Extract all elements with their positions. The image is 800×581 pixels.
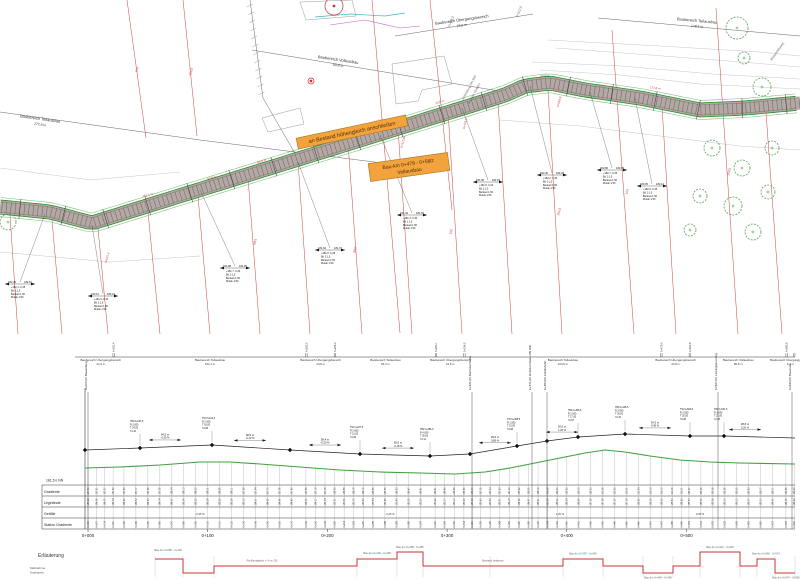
svg-text:-0,35 %: -0,35 %: [161, 436, 171, 440]
svg-text:188,22: 188,22: [519, 487, 521, 495]
svg-text:-0,35 %: -0,35 %: [195, 512, 205, 516]
svg-text:188,31: 188,31: [208, 487, 210, 495]
svg-text:f 0,10: f 0,10: [130, 430, 137, 433]
svg-text:187,38: 187,38: [603, 498, 605, 506]
profile-datum-label: 181,5 ü NN: [46, 479, 64, 483]
svg-text:184,30: 184,30: [306, 498, 308, 506]
svg-text:0+150: 0+150: [267, 520, 269, 527]
svg-text:0+190: 0+190: [315, 520, 317, 527]
svg-text:164,5 m: 164,5 m: [558, 362, 569, 366]
svg-text:182,95: 182,95: [616, 166, 624, 170]
svg-text:0,45 %: 0,45 %: [651, 424, 660, 428]
svg-text:186,09: 186,09: [661, 498, 663, 506]
svg-text:185,53: 185,53: [689, 498, 691, 506]
svg-text:186,49: 186,49: [445, 487, 447, 495]
svg-text:f 0,09: f 0,09: [350, 436, 357, 439]
svg-text:181,88: 181,88: [223, 264, 231, 268]
svg-text:184,92: 184,92: [794, 498, 796, 506]
svg-text:0+352: 0+352: [509, 520, 511, 527]
svg-text:190,31: 190,31: [627, 487, 629, 495]
svg-text:Mulde 1:50: Mulde 1:50: [403, 227, 416, 230]
svg-text:185,12: 185,12: [737, 498, 739, 506]
svg-text:0+344: 0+344: [500, 520, 502, 527]
svg-text:0+070: 0+070: [172, 520, 174, 527]
svg-text:0+440: 0+440: [615, 520, 617, 527]
svg-text:Mulde 1:50: Mulde 1:50: [11, 296, 24, 299]
svg-text:184,30: 184,30: [105, 498, 107, 506]
svg-text:186,78: 186,78: [354, 487, 356, 495]
svg-text:183,46: 183,46: [385, 498, 387, 506]
svg-text:182,04: 182,04: [107, 292, 115, 296]
callout-baukm: Bau-km 0+479 - 0+580: Vollausbau: [368, 153, 450, 182]
svg-text:189,93: 189,93: [591, 487, 593, 495]
svg-text:183,43: 183,43: [481, 498, 483, 506]
svg-text:Bau-km 0+512 - 0+545: Bau-km 0+512 - 0+545: [706, 545, 734, 549]
svg-text:184,90: 184,90: [172, 498, 174, 506]
svg-text:185,12: 185,12: [244, 498, 246, 506]
svg-text:0+583,6: 0+583,6: [556, 96, 563, 108]
profile-table-headers: 181,5 ü NN Gradiente Urgelände Gefälle S…: [44, 479, 72, 528]
svg-text:Bau-km 0+560 - 0+574: Bau-km 0+560 - 0+574: [752, 552, 780, 556]
svg-text:0,85 %: 0,85 %: [491, 438, 500, 442]
svg-text:0+488: 0+488: [672, 520, 674, 527]
svg-text:186,35: 186,35: [650, 498, 652, 506]
svg-text:0+420: 0+420: [591, 520, 593, 527]
svg-text:185,90: 185,90: [557, 498, 559, 506]
svg-text:0+170: 0+170: [291, 520, 293, 527]
svg-text:f 0,11: f 0,11: [420, 438, 426, 441]
svg-text:102/1: 102/1: [726, 167, 732, 176]
svg-text:0+300: 0+300: [441, 533, 454, 538]
svg-text:190,06: 190,06: [603, 487, 605, 495]
svg-text:186,65: 186,65: [373, 487, 375, 495]
band-label-teilausbau-right: Baubereich Teilausbau: [677, 16, 718, 25]
svg-text:23,8 m: 23,8 m: [316, 362, 325, 366]
svg-text:0+542: 0+542: [737, 520, 739, 527]
svg-text:0+100: 0+100: [202, 533, 215, 538]
svg-text:187,70: 187,70: [267, 487, 269, 495]
svg-text:185,03: 185,03: [761, 498, 763, 506]
svg-text:187,86: 187,86: [148, 487, 150, 495]
svg-text:0,45 %: 0,45 %: [696, 512, 705, 516]
svg-text:1,20 %: 1,20 %: [558, 428, 567, 432]
svg-text:f 0,08: f 0,08: [202, 427, 209, 430]
svg-text:0+460: 0+460: [639, 520, 641, 527]
svg-text:0+021: 0+021: [113, 520, 115, 527]
svg-text:182,03: 182,03: [492, 178, 500, 182]
svg-text:185,19: 185,19: [725, 498, 727, 506]
svg-text:184,17: 184,17: [315, 498, 317, 506]
profile-row-gradiente: Gradiente: [44, 490, 60, 494]
svg-text:0+336: 0+336: [490, 520, 492, 527]
svg-text:183,23: 183,23: [464, 498, 466, 506]
svg-text:183,40: 183,40: [397, 498, 399, 506]
svg-text:188,79: 188,79: [538, 487, 540, 495]
band-length-uebergang: 23,8 m: [456, 23, 467, 28]
svg-text:0+100: 0+100: [208, 520, 210, 527]
svg-text:185,22: 185,22: [196, 498, 198, 506]
svg-text:0+384,00 Feldzufahrt: 0+384,00 Feldzufahrt: [543, 361, 547, 390]
svg-text:190,01: 190,01: [682, 487, 684, 495]
svg-text:184,04: 184,04: [325, 498, 327, 506]
svg-text:0+562: 0+562: [761, 520, 763, 527]
svg-text:183,80: 183,80: [344, 498, 346, 506]
svg-text:187,05: 187,05: [591, 498, 593, 506]
svg-text:182,48: 182,48: [556, 171, 564, 175]
svg-text:0+502,8: 0+502,8: [688, 342, 692, 352]
svg-text:0+527,00 Leitungsquerung: 0+527,00 Leitungsquerung: [714, 353, 718, 390]
svg-text:190,24: 190,24: [639, 487, 641, 495]
svg-text:184,66: 184,66: [279, 498, 281, 506]
svg-text:0+090: 0+090: [196, 520, 198, 527]
svg-text:187,03: 187,03: [627, 498, 629, 506]
svg-text:189,96: 189,96: [713, 487, 715, 495]
svg-text:185,39: 185,39: [701, 498, 703, 506]
svg-text:185,56: 185,56: [548, 498, 550, 506]
svg-text:187,63: 187,63: [500, 487, 502, 495]
svg-text:183,54: 183,54: [373, 498, 375, 506]
svg-text:187,51: 187,51: [96, 487, 98, 495]
svg-text:0+080: 0+080: [184, 520, 186, 527]
svg-text:181,50: 181,50: [416, 211, 424, 215]
svg-text:Bau-km 0+258 - 0+280: Bau-km 0+258 - 0+280: [396, 545, 424, 549]
svg-text:184,42: 184,42: [124, 498, 126, 506]
svg-text:184,26: 184,26: [96, 498, 98, 506]
svg-text:188,25: 188,25: [220, 487, 222, 495]
svg-text:Mulde 1:50: Mulde 1:50: [603, 182, 616, 185]
svg-text:182,46: 182,46: [8, 280, 16, 284]
legend-title: Erläuterung: [38, 553, 64, 559]
svg-text:0+290,7: 0+290,7: [434, 342, 438, 352]
svg-text:Mulde 1:50: Mulde 1:50: [479, 194, 492, 197]
svg-text:187,05: 187,05: [481, 487, 483, 495]
svg-text:0+007: 0+007: [96, 520, 98, 527]
svg-text:Profilausgleich + 4 cm DS: Profilausgleich + 4 cm DS: [247, 559, 278, 563]
svg-text:0+160: 0+160: [279, 520, 281, 527]
svg-text:0+222: 0+222: [354, 520, 356, 527]
svg-text:186,58: 186,58: [454, 487, 456, 495]
svg-text:Mulde 1:50: Mulde 1:50: [226, 280, 239, 283]
svg-text:189,08: 189,08: [548, 487, 550, 495]
svg-text:183,12: 183,12: [656, 182, 664, 186]
svg-text:189,97: 189,97: [689, 487, 691, 495]
svg-text:189,71: 189,71: [773, 487, 775, 495]
svg-text:185,83: 185,83: [672, 498, 674, 506]
svg-text:182,12: 182,12: [91, 292, 99, 296]
svg-text:0+522: 0+522: [713, 520, 715, 527]
svg-text:0+050: 0+050: [148, 520, 150, 527]
svg-text:0+130: 0+130: [244, 520, 246, 527]
svg-text:184,18: 184,18: [509, 498, 511, 506]
svg-text:190,12: 190,12: [661, 487, 663, 495]
svg-text:-0,18 %: -0,18 %: [394, 444, 404, 448]
legend-sub1: Maßnahme: [30, 566, 46, 570]
svg-text:183,05: 183,05: [640, 182, 648, 186]
svg-text:189,96: 189,96: [701, 487, 703, 495]
svg-text:0+278: 0+278: [421, 520, 423, 527]
svg-text:0+206: 0+206: [334, 520, 336, 527]
profile-row-station: Station Gradiente: [44, 523, 72, 527]
svg-text:0+590: 0+590: [794, 520, 796, 527]
svg-text:186,59: 186,59: [385, 487, 387, 495]
svg-text:184,95: 184,95: [786, 498, 788, 506]
svg-text:187,98: 187,98: [244, 487, 246, 495]
svg-text:184,52: 184,52: [519, 498, 521, 506]
svg-text:0+021,4: 0+021,4: [112, 342, 116, 352]
svg-text:0+248: 0+248: [385, 520, 387, 527]
svg-text:0+014: 0+014: [105, 520, 107, 527]
svg-text:0+500: 0+500: [680, 533, 693, 538]
svg-text:184,52: 184,52: [136, 498, 138, 506]
svg-text:0+470: 0+470: [650, 520, 652, 527]
svg-text:186,66: 186,66: [464, 487, 466, 495]
svg-text:185,28: 185,28: [208, 498, 210, 506]
svg-text:Bau-km 0+464 - 0+490: Bau-km 0+464 - 0+490: [644, 576, 672, 580]
svg-text:188,13: 188,13: [184, 487, 186, 495]
legend-labels: Erläuterung Maßnahme Ausbauart: [30, 553, 64, 575]
construction-drawing-page: 152151/296/29798/199/2100101/3103102/1 1…: [0, 0, 800, 581]
profile-row-urgelaende: Urgelände: [44, 501, 61, 505]
svg-text:0+400: 0+400: [567, 520, 569, 527]
svg-text:0+321,00 Bachdurchlass: 0+321,00 Bachdurchlass: [468, 355, 472, 390]
svg-text:183,63: 183,63: [490, 498, 492, 506]
svg-text:f 0,10: f 0,10: [615, 416, 622, 419]
svg-text:188,04: 188,04: [172, 487, 174, 495]
svg-text:98/1: 98/1: [252, 238, 258, 245]
svg-text:186,70: 186,70: [363, 487, 365, 495]
svg-text:Bau-km 0+085 - 0+118: Bau-km 0+085 - 0+118: [154, 548, 182, 552]
svg-text:0+021,4: 0+021,4: [104, 252, 111, 264]
svg-text:0+479,0: 0+479,0: [659, 342, 663, 352]
svg-text:185,07: 185,07: [749, 498, 751, 506]
svg-text:0+502: 0+502: [689, 520, 691, 527]
svg-text:161,1 m: 161,1 m: [205, 362, 216, 366]
svg-text:187,27: 187,27: [615, 498, 617, 506]
svg-text:189,83: 189,83: [749, 487, 751, 495]
svg-text:0+368: 0+368: [528, 520, 530, 527]
svg-text:184,63: 184,63: [148, 498, 150, 506]
svg-text:187,34: 187,34: [490, 487, 492, 495]
svg-text:23,8 m: 23,8 m: [446, 362, 455, 366]
svg-text:1,20 %: 1,20 %: [556, 512, 565, 516]
svg-text:187,95: 187,95: [160, 487, 162, 495]
svg-text:183,91: 183,91: [334, 498, 336, 506]
svg-text:187,77: 187,77: [136, 487, 138, 495]
svg-text:181,42: 181,42: [400, 211, 408, 215]
svg-text:f 0,08: f 0,08: [714, 418, 721, 421]
svg-text:187,69: 187,69: [124, 487, 126, 495]
svg-text:187,42: 187,42: [291, 487, 293, 495]
svg-text:189,96: 189,96: [725, 487, 727, 495]
plan-micro-labels: 161,1 m23,8 m84,4 m23,8 m164,5 m23,8 m80…: [104, 5, 785, 263]
svg-text:0+583,6: 0+583,6: [785, 342, 789, 352]
svg-text:183,17: 183,17: [445, 498, 447, 506]
svg-text:0+496: 0+496: [682, 520, 684, 527]
svg-text:186,88: 186,88: [344, 487, 346, 495]
svg-text:0+314: 0+314: [464, 520, 466, 527]
svg-text:0+206,3: 0+206,3: [333, 342, 337, 352]
svg-text:0+182,5: 0+182,5: [304, 342, 308, 352]
svg-text:0+552: 0+552: [749, 520, 751, 527]
legend-sub2: Ausbauart: [30, 571, 44, 575]
svg-text:f 0,07: f 0,07: [568, 419, 575, 422]
svg-text:184,74: 184,74: [160, 498, 162, 506]
svg-text:186,69: 186,69: [639, 498, 641, 506]
svg-text:183,72: 183,72: [354, 498, 356, 506]
svg-text:181,70: 181,70: [334, 246, 342, 250]
svg-text:184,82: 184,82: [267, 498, 269, 506]
svg-text:187,18: 187,18: [315, 487, 317, 495]
svg-text:186,47: 186,47: [409, 487, 411, 495]
svg-text:0+198: 0+198: [325, 520, 327, 527]
svg-text:181,95: 181,95: [239, 264, 247, 268]
svg-text:184,87: 184,87: [528, 498, 530, 506]
svg-text:0+140: 0+140: [255, 520, 257, 527]
svg-text:0+479: 0+479: [661, 520, 663, 527]
band-length-vollausbau: 80,8 m: [333, 63, 344, 69]
svg-text:182,86: 182,86: [600, 166, 608, 170]
svg-text:187,62: 187,62: [113, 487, 115, 495]
svg-text:189,90: 189,90: [737, 487, 739, 495]
svg-text:0+410: 0+410: [579, 520, 581, 527]
svg-text:190,18: 190,18: [650, 487, 652, 495]
svg-text:0+392: 0+392: [557, 520, 559, 527]
svg-text:185,06: 185,06: [184, 498, 186, 506]
svg-text:152: 152: [134, 66, 139, 72]
svg-text:0+328: 0+328: [481, 520, 483, 527]
svg-text:f 0,08: f 0,08: [680, 418, 687, 421]
svg-text:186,79: 186,79: [472, 487, 474, 495]
svg-text:182,51: 182,51: [24, 280, 32, 284]
svg-text:0+430: 0+430: [603, 520, 605, 527]
svg-text:99/2: 99/2: [352, 246, 358, 253]
svg-text:183,33: 183,33: [472, 498, 474, 506]
svg-text:0+572: 0+572: [773, 520, 775, 527]
svg-text:0+230: 0+230: [363, 520, 365, 527]
svg-text:0,20 %: 0,20 %: [741, 425, 750, 429]
svg-text:0+000: 0+000: [82, 533, 95, 538]
svg-text:183,91: 183,91: [500, 498, 502, 506]
svg-text:151/2: 151/2: [188, 67, 194, 76]
svg-text:190,20: 190,20: [615, 487, 617, 495]
svg-text:-0,25 %: -0,25 %: [385, 512, 395, 516]
svg-text:0+290: 0+290: [435, 520, 437, 527]
svg-text:185,21: 185,21: [538, 498, 540, 506]
svg-text:Mulde 1:50: Mulde 1:50: [543, 187, 556, 190]
svg-text:189,52: 189,52: [567, 487, 569, 495]
svg-text:0+400: 0+400: [561, 533, 574, 538]
svg-text:189,60: 189,60: [794, 487, 796, 495]
svg-text:0+314,5: 0+314,5: [462, 342, 466, 352]
svg-text:0+200: 0+200: [321, 533, 334, 538]
svg-text:0+182: 0+182: [306, 520, 308, 527]
svg-text:186,41: 186,41: [421, 487, 423, 495]
svg-text:183,30: 183,30: [421, 498, 423, 506]
band-length-teilausbau-left: 172,8 m: [34, 122, 47, 128]
svg-text:84,4 m: 84,4 m: [381, 362, 390, 366]
svg-text:Mulde 1:50: Mulde 1:50: [94, 308, 107, 311]
svg-text:189,79: 189,79: [579, 487, 581, 495]
svg-text:186,41: 186,41: [435, 487, 437, 495]
svg-text:0+040: 0+040: [136, 520, 138, 527]
svg-text:0+321: 0+321: [472, 520, 474, 527]
svg-text:101/3: 101/3: [556, 207, 562, 216]
svg-text:181,64: 181,64: [318, 246, 326, 250]
svg-text:f 0,08: f 0,08: [507, 428, 514, 431]
svg-text:187,28: 187,28: [306, 487, 308, 495]
svg-text:0+512: 0+512: [701, 520, 703, 527]
svg-text:23,8 m: 23,8 m: [671, 362, 680, 366]
svg-text:Mulde 1:50: Mulde 1:50: [321, 262, 334, 265]
svg-text:189,30: 189,30: [557, 487, 559, 495]
svg-text:-0,25 %: -0,25 %: [321, 441, 331, 445]
svg-text:0+214: 0+214: [344, 520, 346, 527]
svg-text:0+384: 0+384: [548, 520, 550, 527]
svg-text:0+371,00 Rohrdurchlass DN 600: 0+371,00 Rohrdurchlass DN 600: [528, 345, 532, 390]
svg-text:187,84: 187,84: [255, 487, 257, 495]
svg-text:0+110: 0+110: [220, 520, 222, 527]
svg-text:185,26: 185,26: [713, 498, 715, 506]
svg-text:Mulde 1:50: Mulde 1:50: [643, 198, 656, 201]
svg-text:103: 103: [624, 188, 629, 194]
svg-text:Bau-km 0+397 - 0+430: Bau-km 0+397 - 0+430: [569, 552, 597, 556]
svg-text:Bau-km 0+225 - 0+258: Bau-km 0+225 - 0+258: [363, 551, 391, 555]
profile-row-gefaelle: Gefälle: [44, 512, 55, 516]
svg-text:0+412,84: 0+412,84: [399, 135, 406, 149]
legend-strip: Bau-km 0+085 - 0+118Profilausgleich + 4 …: [154, 545, 800, 580]
svg-text:182,40: 182,40: [540, 171, 548, 175]
svg-text:188,22: 188,22: [196, 487, 198, 495]
svg-text:189,77: 189,77: [761, 487, 763, 495]
svg-text:0+268: 0+268: [409, 520, 411, 527]
svg-text:172,8 m: 172,8 m: [649, 85, 661, 90]
svg-text:0+532: 0+532: [725, 520, 727, 527]
svg-text:186,98: 186,98: [334, 487, 336, 495]
svg-text:0+238: 0+238: [373, 520, 375, 527]
plan-annotation-clusters: 182,46182,51+182,1 -0,35Bö 1:1,5Bankett …: [5, 86, 667, 311]
svg-text:0+479,0: 0+479,0: [462, 118, 469, 130]
profile-section: Baubereich Übergangsbereich21,4 mBaubere…: [42, 342, 800, 538]
svg-text:0+030: 0+030: [124, 520, 126, 527]
svg-text:184,97: 184,97: [255, 498, 257, 506]
svg-text:0+120: 0+120: [232, 520, 234, 527]
svg-text:185,28: 185,28: [220, 498, 222, 506]
svg-text:0+360: 0+360: [519, 520, 521, 527]
svg-text:190,06: 190,06: [672, 487, 674, 495]
svg-text:80,8 m: 80,8 m: [734, 362, 743, 366]
svg-text:0+298: 0+298: [445, 520, 447, 527]
plan-band-labels: Baubereich Teilausbau 172,8 m Baubereich…: [20, 13, 718, 127]
drawing-canvas: 152151/296/29798/199/2100101/3103102/1 1…: [0, 0, 800, 581]
svg-text:0+000,00 Bauanfang: 0+000,00 Bauanfang: [84, 361, 88, 390]
svg-text:187,93: 187,93: [509, 487, 511, 495]
svg-text:187,57: 187,57: [105, 487, 107, 495]
svg-text:186,68: 186,68: [579, 498, 581, 506]
svg-text:181,95: 181,95: [476, 178, 484, 182]
svg-text:184,49: 184,49: [291, 498, 293, 506]
svg-text:186,24: 186,24: [567, 498, 569, 506]
svg-text:184,99: 184,99: [773, 498, 775, 506]
svg-text:0+306: 0+306: [454, 520, 456, 527]
svg-text:Baubereich Übergangsbereich: Baubereich Übergangsbereich: [770, 358, 800, 362]
svg-text:Wirtschaftsweg: Wirtschaftsweg: [769, 41, 785, 61]
svg-text:183,35: 183,35: [409, 498, 411, 506]
svg-text:0+376: 0+376: [538, 520, 540, 527]
svg-text:187,08: 187,08: [325, 487, 327, 495]
svg-text:183,12: 183,12: [454, 498, 456, 506]
svg-text:188,11: 188,11: [232, 487, 234, 495]
svg-text:184,34: 184,34: [113, 498, 115, 506]
